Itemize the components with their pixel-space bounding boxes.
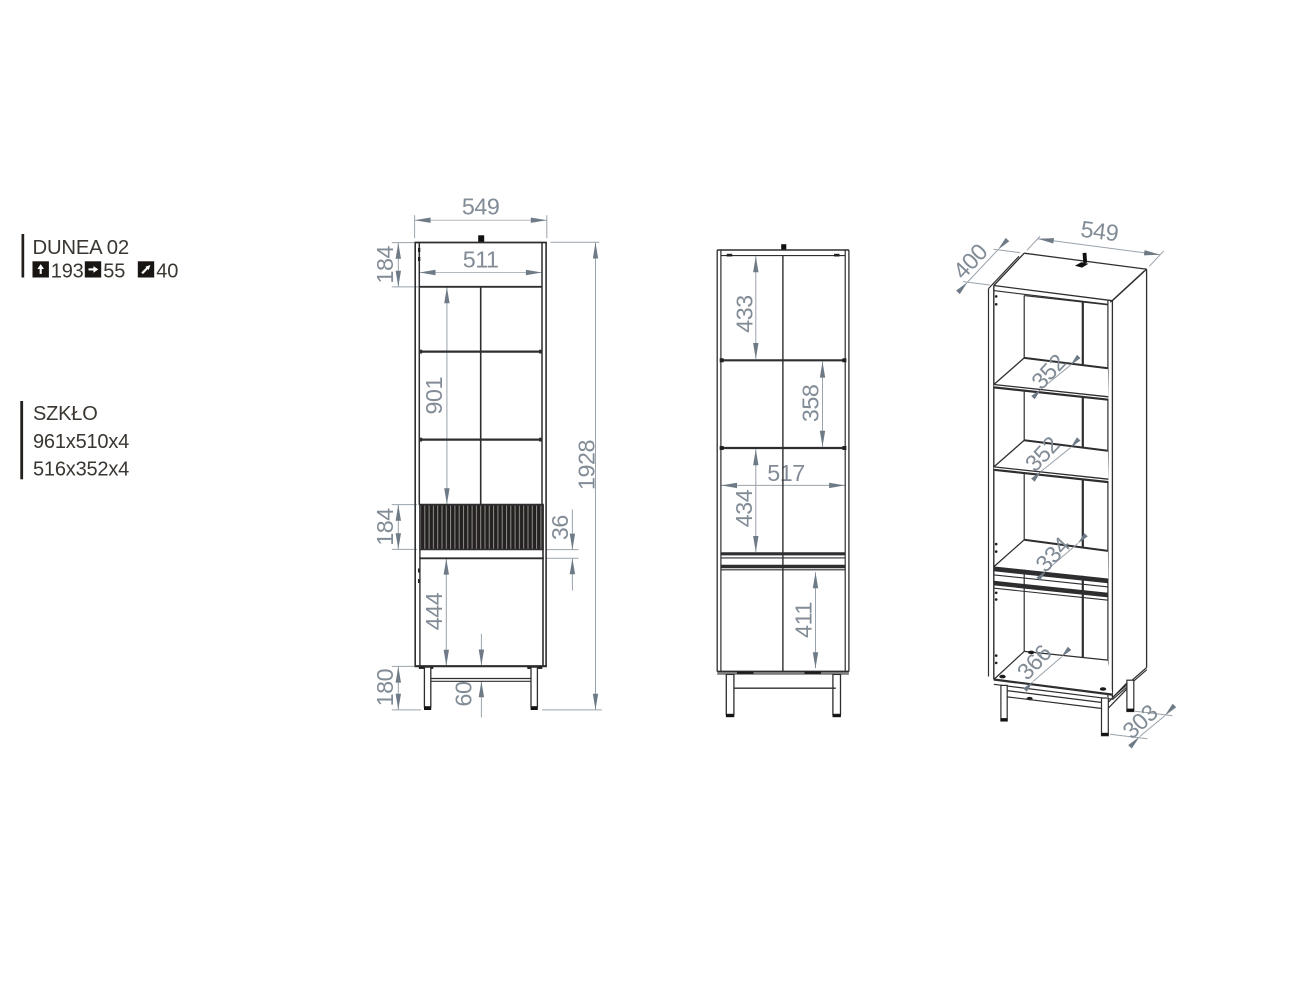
svg-text:400: 400 bbox=[948, 238, 993, 284]
svg-text:433: 433 bbox=[732, 295, 758, 333]
svg-text:1928: 1928 bbox=[573, 440, 599, 490]
svg-text:184: 184 bbox=[372, 508, 398, 546]
svg-text:40: 40 bbox=[156, 261, 178, 283]
svg-text:549: 549 bbox=[462, 194, 500, 220]
svg-text:961x510x4: 961x510x4 bbox=[33, 431, 129, 453]
svg-text:444: 444 bbox=[421, 592, 447, 630]
svg-text:303: 303 bbox=[1117, 699, 1162, 744]
svg-text:434: 434 bbox=[731, 489, 757, 527]
svg-text:55: 55 bbox=[103, 261, 125, 283]
svg-text:411: 411 bbox=[791, 602, 817, 638]
svg-text:358: 358 bbox=[798, 385, 824, 423]
svg-text:549: 549 bbox=[1079, 216, 1120, 247]
svg-text:517: 517 bbox=[767, 460, 805, 486]
svg-text:901: 901 bbox=[421, 377, 447, 415]
svg-text:193: 193 bbox=[51, 261, 84, 283]
svg-text:36: 36 bbox=[547, 515, 573, 540]
svg-text:DUNEA 02: DUNEA 02 bbox=[33, 237, 129, 259]
svg-text:180: 180 bbox=[372, 668, 398, 706]
svg-text:516x352x4: 516x352x4 bbox=[33, 459, 129, 481]
svg-text:511: 511 bbox=[463, 247, 499, 273]
svg-text:60: 60 bbox=[451, 681, 477, 707]
svg-text:184: 184 bbox=[372, 246, 398, 284]
svg-text:SZKŁO: SZKŁO bbox=[33, 403, 98, 425]
